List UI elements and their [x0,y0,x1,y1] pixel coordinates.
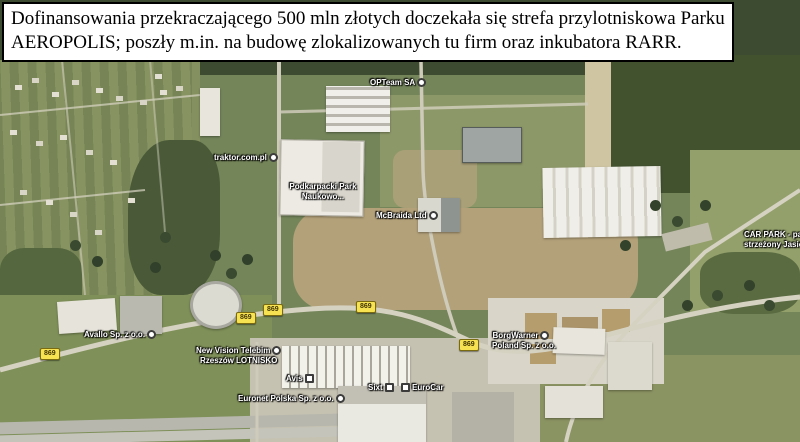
route-shield-869: 869 [263,304,283,316]
map-label-borgwarner[interactable]: BorgWarner Poland Sp. z o.o. [492,331,550,351]
map-label-text: BorgWarner [493,331,539,340]
map-label-text: traktor.com.pl [214,153,267,162]
map-label-podkarpacki-park[interactable]: Podkarpacki Park Naukowo... [283,182,363,202]
map-label-text: OPTeam SA [370,78,415,87]
poi-marker-icon [272,346,281,355]
map-label-avis[interactable]: Avis [286,374,314,384]
satellite-map[interactable]: 869 869 869 869 869 OPTeam SA traktor.co… [0,0,800,442]
poi-marker-icon [417,78,426,87]
map-label-new-vision[interactable]: New Vision Telebim Rzeszów LOTNISKO [196,346,281,366]
map-label-text: Sixt [368,383,383,392]
building [57,298,117,334]
route-shield-869: 869 [459,339,479,351]
poi-marker-icon [540,331,549,340]
map-label-sixt[interactable]: Sixt [368,383,394,393]
building [545,386,603,418]
map-label-text: McBraida Ltd [376,211,427,220]
map-label-opteam[interactable]: OPTeam SA [370,78,426,88]
map-label-text: Avis [286,374,303,383]
apron-pad [452,392,514,442]
poi-marker-icon [305,374,314,383]
map-label-car-park[interactable]: CAR PARK - parking strzeżony Jasionka [744,230,800,250]
map-label-text: Podkarpacki Park [283,182,363,192]
map-label-text: New Vision Telebim [196,346,270,355]
building-dark-roof [462,127,522,163]
map-label-mcbraida[interactable]: McBraida Ltd [376,211,438,221]
map-label-text: Avallo Sp. z o.o. [84,330,145,339]
map-label-euronet[interactable]: Euronet Polska Sp. z o.o. [238,394,345,404]
building-circular [190,281,242,329]
map-label-avallo[interactable]: Avallo Sp. z o.o. [84,330,156,340]
route-shield-869: 869 [236,312,256,324]
map-label-eurocar[interactable]: EuroCar [401,383,444,393]
screenshot-root: 869 869 869 869 869 OPTeam SA traktor.co… [0,0,800,442]
route-shield-869: 869 [356,301,376,313]
building [553,327,606,355]
building-large-complex [542,166,661,238]
map-label-text: Naukowo... [283,192,363,202]
poi-marker-icon [269,153,278,162]
building [200,88,220,136]
poi-marker-icon [385,383,394,392]
map-label-traktor[interactable]: traktor.com.pl [214,153,278,163]
building-terminal [338,386,426,442]
caption-line-2: AEROPOLIS; poszły m.in. na budowę zlokal… [11,31,725,55]
map-label-text: Poland Sp. z o.o. [492,341,550,351]
map-label-text: strzeżony Jasionka [744,240,800,249]
poi-marker-icon [429,211,438,220]
building [120,296,162,334]
building-warehouse-rows [326,86,390,132]
poi-marker-icon [147,330,156,339]
map-label-text: Euronet Polska Sp. z o.o. [238,394,334,403]
poi-marker-icon [336,394,345,403]
caption-box: Dofinansowania przekraczającego 500 mln … [2,2,734,62]
caption-line-1: Dofinansowania przekraczającego 500 mln … [11,7,725,31]
map-label-text: CAR PARK - parking [744,230,800,240]
map-label-text: EuroCar [412,383,444,392]
map-label-text: Rzeszów LOTNISKO [196,356,281,366]
poi-marker-icon [401,383,410,392]
route-shield-869: 869 [40,348,60,360]
building [608,342,652,390]
